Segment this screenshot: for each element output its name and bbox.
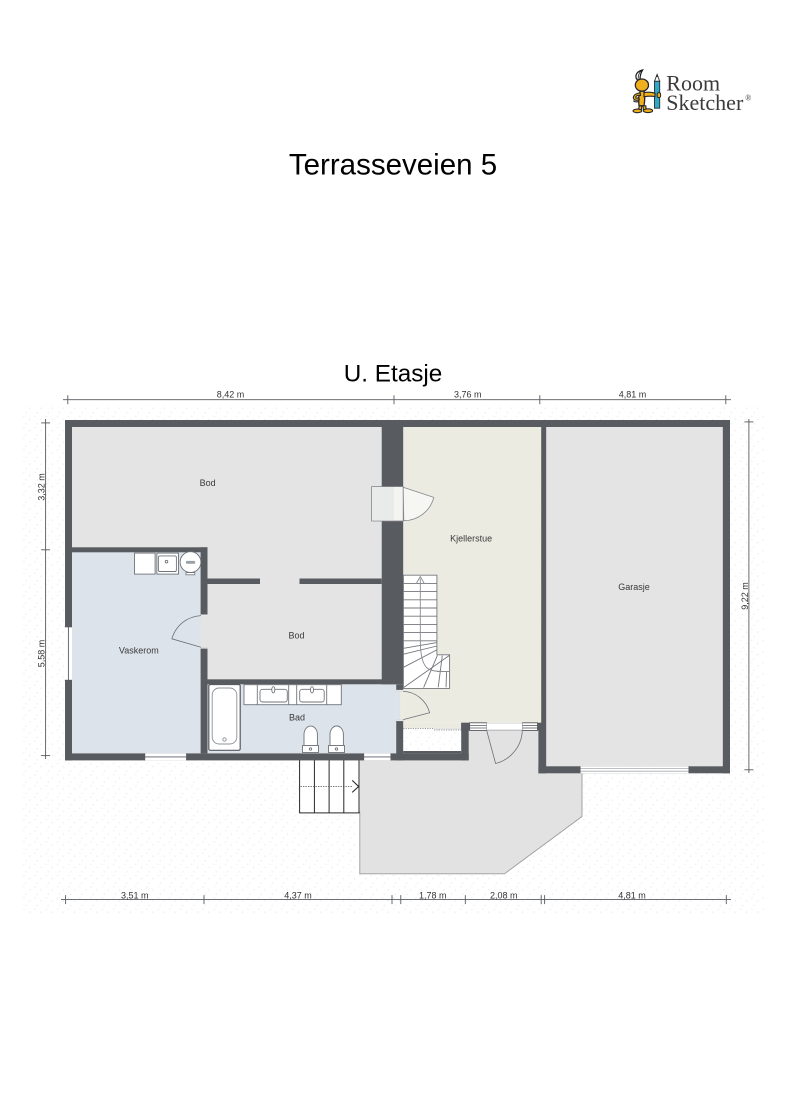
svg-text:1,78 m: 1,78 m [419, 891, 447, 901]
svg-text:Terrasseveien 5: Terrasseveien 5 [289, 149, 497, 182]
svg-text:Bod: Bod [200, 478, 216, 488]
svg-text:5,58 m: 5,58 m [36, 640, 46, 668]
svg-text:3,51 m: 3,51 m [121, 891, 149, 901]
svg-text:4,81 m: 4,81 m [619, 390, 647, 400]
svg-text:U. Etasje: U. Etasje [344, 360, 443, 387]
svg-text:9,22 m: 9,22 m [740, 582, 750, 610]
svg-text:2,08 m: 2,08 m [490, 891, 518, 901]
svg-text:Bod: Bod [288, 631, 304, 641]
svg-text:3,76 m: 3,76 m [454, 390, 482, 400]
svg-text:4,81 m: 4,81 m [618, 891, 646, 901]
svg-text:Kjellerstue: Kjellerstue [450, 533, 492, 543]
svg-text:8,42 m: 8,42 m [217, 390, 245, 400]
svg-text:Bad: Bad [289, 713, 305, 723]
svg-text:3,32 m: 3,32 m [36, 473, 46, 501]
svg-text:4,37 m: 4,37 m [284, 891, 312, 901]
svg-text:Vaskerom: Vaskerom [119, 646, 159, 656]
svg-text:Garasje: Garasje [618, 582, 650, 592]
svg-text:Sketcher: Sketcher [666, 90, 744, 115]
svg-text:®: ® [745, 94, 751, 103]
